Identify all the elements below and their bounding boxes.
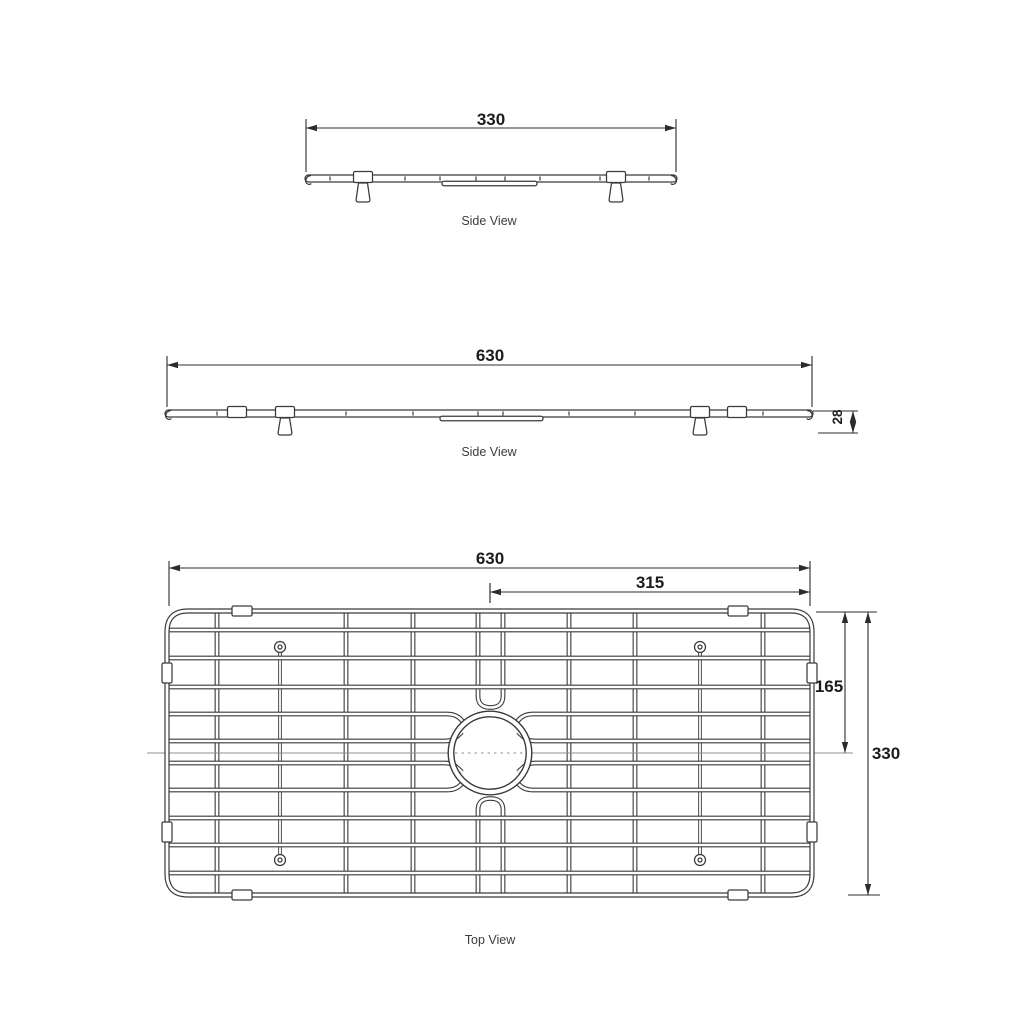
arrowhead	[850, 411, 856, 422]
arrowhead	[169, 565, 180, 571]
dim-label-top-630: 630	[476, 549, 504, 568]
foot-mount	[691, 407, 710, 418]
mounting-clip	[728, 890, 748, 900]
foot-mount	[607, 172, 626, 183]
arrowhead	[801, 362, 812, 368]
grid-h-wire-bent	[515, 714, 812, 725]
top-view-caption: Top View	[465, 933, 516, 947]
arrowhead	[842, 612, 848, 623]
rubber-foot	[693, 418, 707, 435]
mounting-clip	[232, 606, 252, 616]
grid-h-wire-bent	[168, 732, 462, 741]
drain-ring-edge	[440, 416, 543, 421]
grid-h-wire-bent	[168, 780, 466, 791]
arrowhead	[665, 125, 676, 131]
grid-h-wire-bent	[168, 714, 466, 725]
dim-label-top-315: 315	[636, 573, 664, 592]
dim-label-630-width: 630	[476, 346, 504, 365]
arrowhead	[842, 742, 848, 753]
rubber-foot	[278, 418, 292, 435]
pin-head-center	[698, 858, 702, 862]
mounting-clip	[807, 663, 817, 683]
arrowhead	[799, 589, 810, 595]
grid-h-wire-bent	[515, 780, 812, 791]
dim-label-top-330: 330	[872, 744, 900, 763]
side-view-330-caption: Side View	[461, 214, 517, 228]
pin-head-center	[278, 858, 282, 862]
mounting-clip	[162, 663, 172, 683]
side-view-630-caption: Side View	[461, 445, 517, 459]
dim-label-top-165: 165	[815, 677, 843, 696]
side-view-630: 630 28 Side View	[165, 346, 858, 459]
arrowhead	[799, 565, 810, 571]
foot-mount	[276, 407, 295, 418]
grid-h-wire-bent	[168, 763, 462, 772]
top-view: 630 315 165 330 Top View	[147, 549, 900, 947]
arrowhead	[865, 884, 871, 895]
arrowhead	[306, 125, 317, 131]
foot-mount	[354, 172, 373, 183]
mounting-clip	[728, 407, 747, 418]
dim-label-330-width: 330	[477, 110, 505, 129]
arrowhead	[865, 612, 871, 623]
arrowhead	[490, 589, 501, 595]
mounting-clip	[728, 606, 748, 616]
pin-head-center	[278, 645, 282, 649]
mounting-clip	[228, 407, 247, 418]
arrowhead	[850, 422, 856, 433]
pin-head-center	[698, 645, 702, 649]
drawing-page: 330 Side View 630 28 Side View 630 315 1…	[0, 0, 1023, 1024]
mounting-clip	[232, 890, 252, 900]
drain-ring-edge	[442, 181, 537, 186]
rubber-foot	[356, 183, 370, 202]
grid-h-wire-bent	[518, 732, 811, 741]
technical-drawing: 330 Side View 630 28 Side View 630 315 1…	[0, 0, 1023, 1024]
rubber-foot	[609, 183, 623, 202]
grid-h-wire-bent	[518, 763, 811, 772]
arrowhead	[167, 362, 178, 368]
mounting-clip	[807, 822, 817, 842]
side-view-330: 330 Side View	[305, 110, 677, 228]
mounting-clip	[162, 822, 172, 842]
